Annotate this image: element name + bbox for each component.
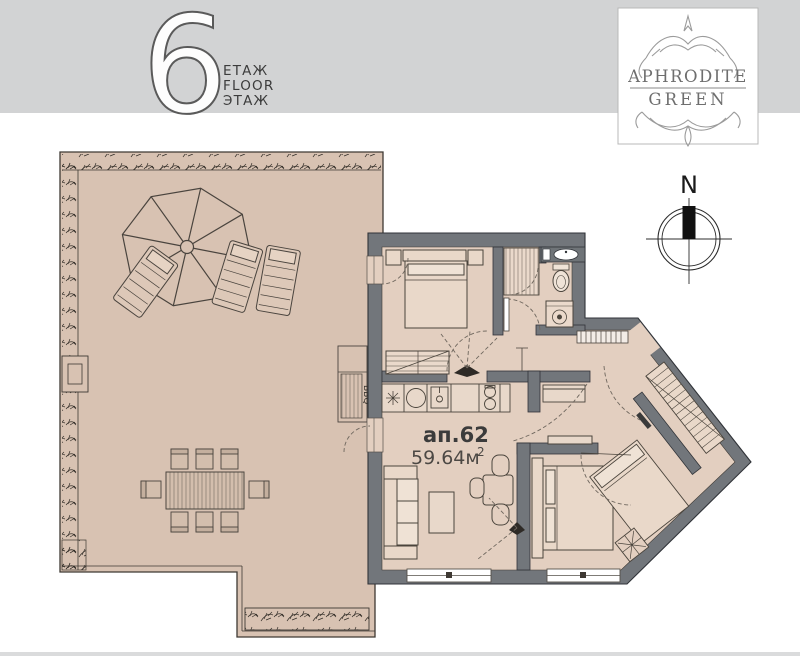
floor-label-bg: ЕТАЖ <box>223 63 268 79</box>
apartment-number-label: ап.62 <box>423 423 489 447</box>
bathroom-door-leaf <box>504 298 509 331</box>
logo-title-line1: APHRODITE <box>627 67 748 86</box>
floor-label-ru: ЭТАЖ <box>223 93 269 109</box>
planter-pot-corner <box>62 540 86 570</box>
bed2-pillow-1 <box>546 470 555 504</box>
terrace-door-living <box>367 418 383 452</box>
cooktop-symbol <box>386 391 400 405</box>
bed2-pillow-2 <box>546 508 555 542</box>
desk-shelf <box>548 436 592 444</box>
vanity-sink <box>541 247 585 262</box>
compass-rose: N <box>646 171 732 284</box>
bbq-station: BBQ <box>338 346 371 422</box>
footer-band <box>0 652 800 656</box>
terrace-floor <box>60 152 383 637</box>
coffee-table <box>429 492 454 533</box>
floor-number: 6 <box>142 0 228 144</box>
bed1-pillow <box>408 264 464 275</box>
console-shelf <box>543 385 585 402</box>
sofa <box>384 466 418 559</box>
window-bedroom2 <box>547 569 620 582</box>
compass-north-label: N <box>680 171 698 199</box>
apartment-area-label: 59.64м <box>411 447 480 469</box>
floorplan-drawing: 6 ЕТАЖ FLOOR ЭТАЖ APHRODITE GREEN <box>0 0 800 663</box>
logo-title-line2: GREEN <box>648 90 727 109</box>
apartment-area-superscript: 2 <box>477 445 485 459</box>
planter-box-left <box>62 356 88 392</box>
window-living <box>407 569 491 582</box>
brand-logo: APHRODITE GREEN <box>618 8 758 146</box>
planter-box-bottom <box>245 608 369 630</box>
washing-machine <box>546 301 573 327</box>
floorplan-page: 6 ЕТАЖ FLOOR ЭТАЖ APHRODITE GREEN <box>0 0 800 663</box>
bed2-headboard <box>532 458 543 558</box>
nightstand-right <box>468 250 483 265</box>
terrace-door-bedroom <box>367 256 383 284</box>
bed1-headboard <box>403 250 466 261</box>
compass-needle <box>683 206 696 239</box>
toilet <box>553 264 569 292</box>
wardrobe-bedroom1 <box>386 351 449 374</box>
apartment: ап.62 59.64м 2 <box>344 233 751 584</box>
niche-railing <box>577 331 628 343</box>
terrace: BBQ <box>60 152 383 637</box>
nightstand-left <box>386 250 401 265</box>
floor-label-en: FLOOR <box>223 78 274 94</box>
